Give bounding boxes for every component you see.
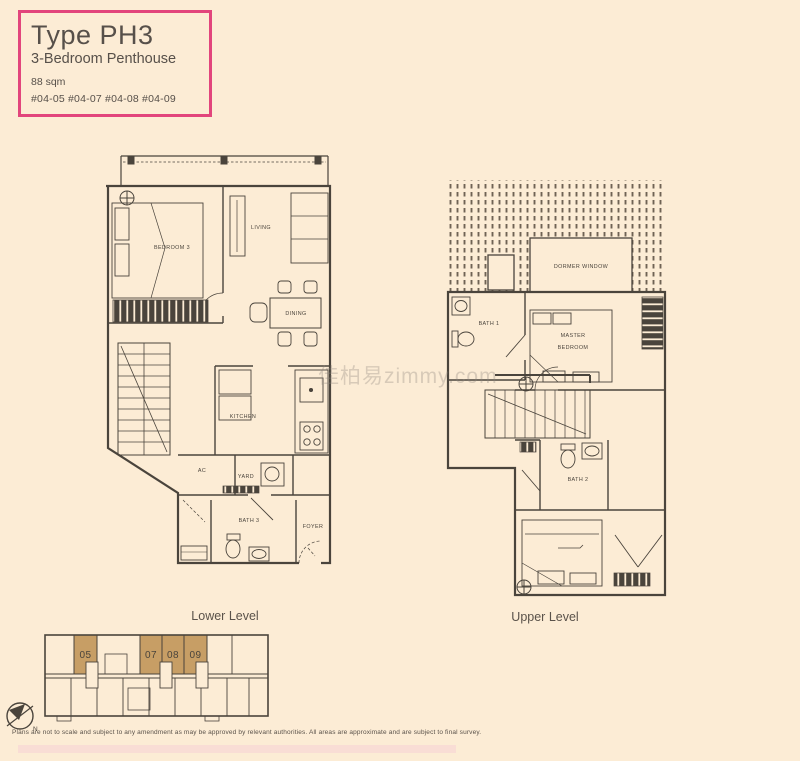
- lower-level-caption: Lower Level: [160, 609, 290, 623]
- label-foyer: FOYER: [303, 524, 324, 530]
- label-ac: AC: [198, 468, 206, 474]
- label-kitchen: KITCHEN: [230, 414, 256, 420]
- plan-subtitle: 3-Bedroom Penthouse: [31, 51, 199, 67]
- label-bath3: BATH 3: [239, 518, 260, 524]
- plan-unit-numbers: #04-05 #04-07 #04-08 #04-09: [31, 93, 199, 105]
- upper-furniture: [452, 297, 663, 594]
- upper-outer-walls: [448, 292, 665, 595]
- bottom-highlight-strip: [18, 745, 456, 753]
- label-yard: YARD: [238, 474, 254, 480]
- locator-building: 05 07 08 09: [45, 635, 268, 721]
- label-master-line1: MASTER: [561, 333, 586, 339]
- unit-number-05: 05: [80, 650, 92, 661]
- unit-number-08: 08: [167, 650, 179, 661]
- label-dormer-window: DORMER WINDOW: [554, 264, 609, 270]
- watermark: 佳柏易zimmy.com: [318, 360, 498, 390]
- label-dining: DINING: [285, 311, 306, 317]
- label-bath2: BATH 2: [568, 477, 589, 483]
- unit-number-07: 07: [145, 650, 157, 661]
- upper-room-labels: DORMER WINDOW BATH 1 MASTER BEDROOM BATH…: [479, 264, 609, 483]
- lower-staircase: [118, 343, 170, 455]
- lower-room-labels: BEDROOM 3 LIVING DINING KITCHEN AC YARD …: [154, 225, 323, 530]
- lower-level-plan: BEDROOM 3 LIVING DINING KITCHEN AC YARD …: [103, 148, 340, 606]
- upper-level-plan: DORMER WINDOW BATH 1 MASTER BEDROOM BATH…: [440, 175, 675, 605]
- upper-level-caption: Upper Level: [480, 610, 610, 624]
- title-card: Type PH3 3-Bedroom Penthouse 88 sqm #04-…: [18, 10, 212, 117]
- label-bedroom3: BEDROOM 3: [154, 245, 190, 251]
- disclaimer-text: Plans are not to scale and subject to an…: [12, 729, 612, 736]
- label-bath1: BATH 1: [479, 321, 500, 327]
- floorplan-page: Type PH3 3-Bedroom Penthouse 88 sqm #04-…: [0, 0, 800, 761]
- label-master-line2: BEDROOM: [558, 345, 589, 351]
- plan-type-title: Type PH3: [31, 21, 199, 49]
- label-living: LIVING: [251, 225, 271, 231]
- upper-staircase: [485, 390, 590, 438]
- lower-balcony-strip: [121, 156, 328, 186]
- unit-number-09: 09: [190, 650, 202, 661]
- plan-area: 88 sqm: [31, 76, 199, 88]
